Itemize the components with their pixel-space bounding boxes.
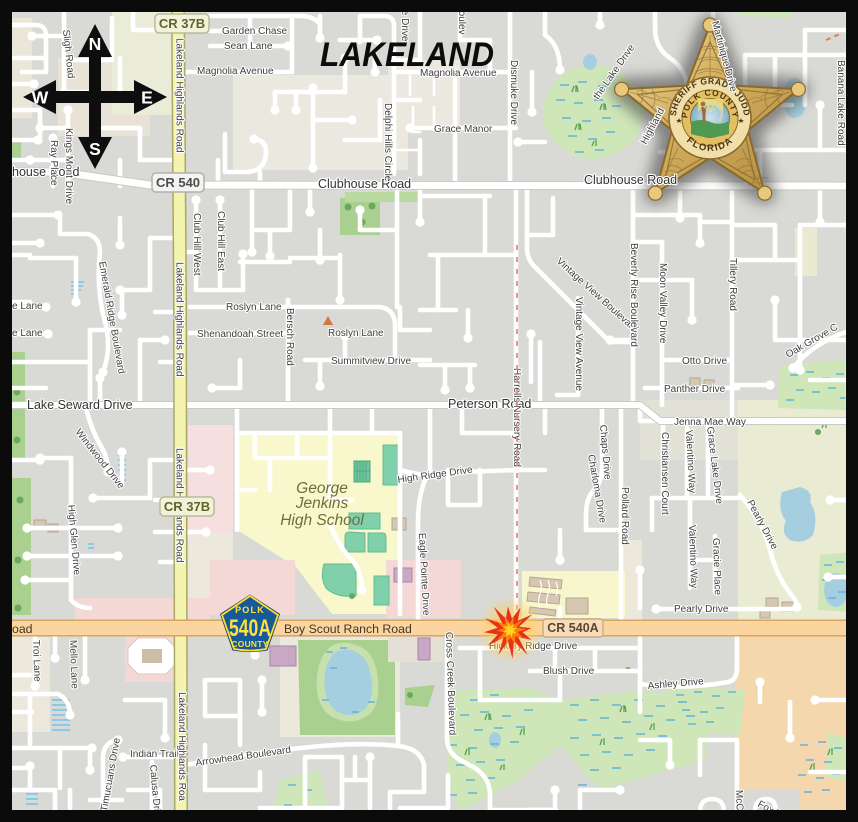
svg-text:Kings Mont Drive: Kings Mont Drive — [63, 128, 74, 205]
svg-text:Shenandoah Street: Shenandoah Street — [197, 329, 283, 340]
svg-text:Panther Drive: Panther Drive — [664, 384, 726, 395]
svg-text:Gracie Place: Gracie Place — [710, 538, 723, 596]
svg-text:W: W — [32, 88, 49, 108]
svg-text:540A: 540A — [229, 615, 271, 642]
svg-text:e Lane: e Lane — [12, 301, 43, 312]
svg-text:Lakeland Highlands Road: Lakeland Highlands Road — [174, 262, 185, 377]
svg-text:Delphi Hills Circle: Delphi Hills Circle — [382, 103, 393, 182]
svg-text:Ray Place: Ray Place — [48, 140, 59, 186]
svg-text:Tillery Road: Tillery Road — [727, 258, 738, 311]
svg-text:N: N — [89, 34, 102, 54]
svg-text:Dismuke Drive: Dismuke Drive — [508, 60, 519, 125]
svg-text:Bersch Road: Bersch Road — [284, 308, 295, 366]
svg-text:S: S — [89, 139, 101, 159]
svg-text:e Lane: e Lane — [12, 328, 43, 339]
svg-text:High School: High School — [280, 512, 364, 529]
svg-text:Pearly Drive: Pearly Drive — [674, 604, 729, 615]
svg-text:Blush Drive: Blush Drive — [543, 666, 595, 677]
svg-text:Moon Valley Drive: Moon Valley Drive — [657, 263, 668, 344]
svg-text:Indian Trail: Indian Trail — [130, 749, 179, 760]
svg-text:Roslyn Lane: Roslyn Lane — [328, 328, 384, 339]
svg-text:CR 37B: CR 37B — [159, 16, 205, 31]
svg-text:Troi Lane: Troi Lane — [30, 640, 42, 683]
svg-text:Mello Lane: Mello Lane — [67, 640, 80, 690]
svg-text:Grace Manor: Grace Manor — [434, 124, 493, 135]
svg-text:Club Hill East: Club Hill East — [215, 211, 226, 271]
svg-text:Magnolia Avenue: Magnolia Avenue — [197, 66, 274, 77]
svg-text:Clubhouse Road: Clubhouse Road — [318, 177, 411, 191]
svg-text:Otto Drive: Otto Drive — [682, 356, 727, 367]
svg-text:E: E — [141, 88, 153, 108]
svg-text:Valentino Way: Valentino Way — [686, 525, 699, 589]
svg-text:CR 37B: CR 37B — [164, 499, 210, 514]
svg-text:Boy Scout Ranch Road: Boy Scout Ranch Road — [284, 622, 412, 636]
svg-text:CR 540A: CR 540A — [547, 621, 598, 635]
svg-text:LAKELAND: LAKELAND — [320, 36, 494, 74]
svg-text:Beverly Rise Boulevard: Beverly Rise Boulevard — [628, 243, 639, 347]
svg-text:Lakeland Highlands Roa: Lakeland Highlands Roa — [176, 692, 187, 801]
svg-text:COUNTY: COUNTY — [231, 639, 268, 649]
svg-text:Roslyn Lane: Roslyn Lane — [226, 302, 282, 313]
svg-text:Vintage View Avenue: Vintage View Avenue — [573, 297, 584, 391]
svg-text:Banana Lake Road: Banana Lake Road — [835, 60, 846, 146]
svg-text:Clubhouse Road: Clubhouse Road — [584, 173, 677, 187]
svg-text:Pollard Road: Pollard Road — [619, 487, 630, 545]
svg-text:oad: oad — [12, 622, 33, 636]
svg-text:Christiansen Court: Christiansen Court — [659, 432, 670, 515]
svg-text:Lake Seward Drive: Lake Seward Drive — [27, 398, 133, 412]
svg-text:Jenkins: Jenkins — [295, 495, 349, 512]
svg-text:CR 540: CR 540 — [156, 175, 200, 190]
svg-text:Club Hill West: Club Hill West — [191, 213, 202, 276]
svg-text:Summitview Drive: Summitview Drive — [331, 356, 411, 367]
svg-text:Garden Chase: Garden Chase — [222, 26, 287, 37]
svg-text:Lakeland Highlands Road: Lakeland Highlands Road — [174, 38, 185, 153]
svg-text:POLK: POLK — [235, 605, 265, 615]
svg-text:Sean Lane: Sean Lane — [224, 41, 273, 52]
